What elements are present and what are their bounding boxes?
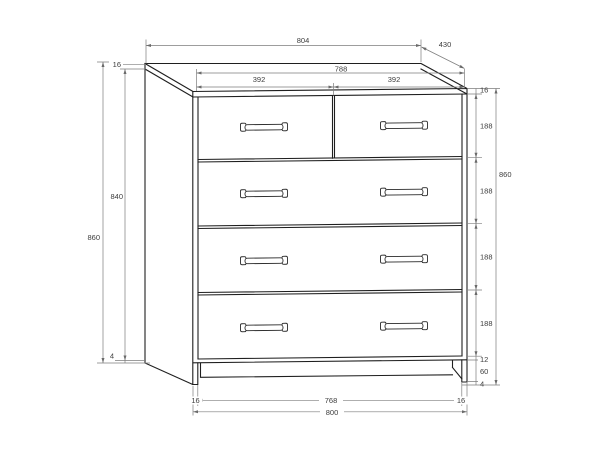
dim-right-top-panel: 16 bbox=[480, 86, 488, 95]
dim-top-left-drawer: 392 bbox=[253, 75, 266, 84]
drawer-handle bbox=[380, 322, 427, 331]
dim-bottom-left-inset: 16 bbox=[191, 396, 199, 405]
dim-right-total-height: 860 bbox=[499, 170, 512, 179]
dim-left-top-panel: 16 bbox=[113, 60, 121, 69]
dim-right-drawer3: 188 bbox=[480, 253, 493, 262]
bottom-panel-lines bbox=[193, 356, 467, 363]
drawer-separator-2 bbox=[198, 223, 462, 229]
dim-top-overall-width: 804 bbox=[297, 36, 310, 45]
dim-right-plinth: 60 bbox=[480, 367, 488, 376]
cabinet bbox=[145, 64, 467, 385]
drawing-canvas: 804 430 788 392 392 16 840 860 4 16 188 … bbox=[0, 0, 604, 453]
dim-line-overall-width-top bbox=[146, 40, 421, 64]
left-side-panel bbox=[145, 64, 193, 385]
dim-left-chain bbox=[97, 62, 150, 363]
dim-left-total-height: 860 bbox=[87, 233, 100, 242]
drawer-handle bbox=[240, 256, 287, 265]
dim-left-bottom: 4 bbox=[110, 352, 114, 361]
drawer-handle bbox=[240, 323, 287, 332]
dim-right-foot: 4 bbox=[480, 380, 484, 389]
dim-inner-width: 788 bbox=[335, 65, 348, 74]
dim-depth: 430 bbox=[439, 40, 452, 49]
dim-bottom-plinth-width: 768 bbox=[325, 396, 338, 405]
right-foot bbox=[462, 360, 467, 382]
drawer-separator-1 bbox=[198, 157, 462, 163]
drawer-handle bbox=[240, 123, 287, 132]
dim-top-right-drawer: 392 bbox=[388, 75, 401, 84]
dim-left-side-height: 840 bbox=[110, 192, 123, 201]
dim-line-depth bbox=[422, 47, 465, 69]
drawer-handle bbox=[380, 188, 427, 197]
dim-right-bottom-panel: 12 bbox=[480, 355, 488, 364]
dim-bottom-right-inset: 16 bbox=[457, 396, 465, 405]
drawer-handle bbox=[380, 121, 427, 130]
top-drawer-divider bbox=[333, 96, 335, 159]
drawer-handle bbox=[240, 189, 287, 198]
dim-right-chain bbox=[462, 89, 500, 386]
dim-right-drawer1: 188 bbox=[480, 122, 493, 131]
furniture-dimension-drawing: 804 430 788 392 392 16 840 860 4 16 188 … bbox=[0, 0, 604, 453]
drawer-handle bbox=[380, 255, 427, 264]
dim-right-drawer2: 188 bbox=[480, 187, 493, 196]
drawer-separator-3 bbox=[198, 290, 462, 296]
dim-bottom-overall-width: 800 bbox=[326, 408, 339, 417]
left-foot bbox=[193, 363, 198, 385]
dim-right-drawer4: 188 bbox=[480, 319, 493, 328]
